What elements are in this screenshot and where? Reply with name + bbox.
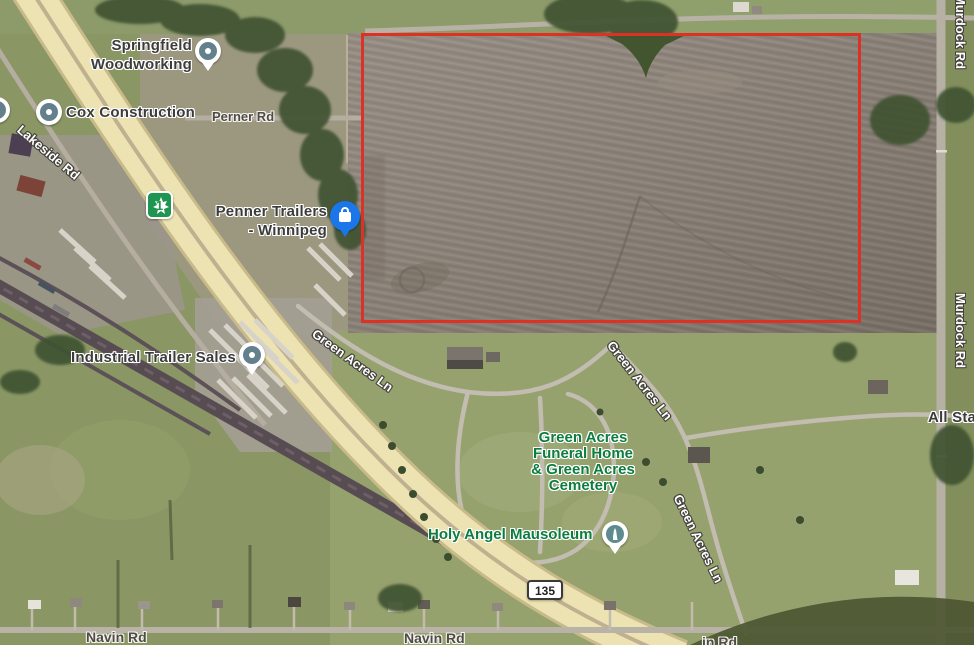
place-dot-pin-icon[interactable] bbox=[36, 99, 62, 125]
shopping-bag-pin-icon[interactable] bbox=[330, 201, 360, 241]
route-135-shield: 135 bbox=[527, 580, 563, 600]
road-label-perner-rd: Perner Rd bbox=[212, 109, 274, 124]
road-label-navin-rd: Navin Rd bbox=[404, 630, 465, 645]
road-label-navin-rd-partial: in Rd bbox=[702, 634, 737, 645]
poi-label-line: Springfield bbox=[91, 36, 192, 55]
road-label-navin-rd: Navin Rd bbox=[86, 629, 147, 645]
shield-number: 1 bbox=[148, 198, 171, 213]
shield-number: 135 bbox=[529, 584, 561, 598]
monument-icon bbox=[613, 528, 618, 540]
poi-label-line: Penner Trailers bbox=[216, 202, 327, 221]
poi-label-springfield-woodworking[interactable]: Springfield Woodworking bbox=[91, 36, 192, 74]
poi-label-industrial-trailer-sales[interactable]: Industrial Trailer Sales bbox=[71, 349, 236, 366]
poi-label-penner-trailers[interactable]: Penner Trailers - Winnipeg bbox=[216, 202, 327, 240]
place-pin-icon[interactable] bbox=[195, 38, 221, 74]
poi-label-all-star[interactable]: All Sta bbox=[928, 409, 974, 426]
monument-pin-icon[interactable] bbox=[602, 521, 628, 557]
area-label-line: & Green Acres bbox=[531, 462, 635, 478]
pin-inner-dot bbox=[0, 101, 6, 119]
poi-label-line: Woodworking bbox=[91, 55, 192, 74]
satellite-terrain bbox=[0, 0, 974, 645]
road-label-murdock-rd: Murdock Rd bbox=[953, 293, 968, 368]
map-canvas[interactable]: Springfield Woodworking Cox Construction… bbox=[0, 0, 974, 645]
shopping-bag-icon bbox=[339, 212, 351, 222]
area-label-line: Green Acres bbox=[531, 430, 635, 446]
area-label-line: Funeral Home bbox=[531, 446, 635, 462]
pin-inner-dot bbox=[40, 103, 58, 121]
pin-inner bbox=[606, 525, 624, 543]
trans-canada-hwy-1-shield: 1 bbox=[146, 191, 173, 219]
pin-tail bbox=[201, 61, 215, 71]
poi-label-line: - Winnipeg bbox=[216, 221, 327, 240]
road-label-murdock-rd: Murdock Rd bbox=[953, 0, 968, 69]
place-pin-icon[interactable] bbox=[239, 342, 265, 378]
pin-tail bbox=[245, 365, 259, 375]
area-label-holy-angel-mausoleum[interactable]: Holy Angel Mausoleum bbox=[428, 527, 592, 543]
pin-tail bbox=[339, 228, 351, 237]
pin-inner-dot bbox=[243, 346, 261, 364]
poi-label-cox-construction[interactable]: Cox Construction bbox=[66, 104, 195, 121]
area-label-green-acres-cemetery[interactable]: Green Acres Funeral Home & Green Acres C… bbox=[531, 430, 635, 494]
pin-tail bbox=[608, 544, 622, 554]
pin-inner-dot bbox=[199, 42, 217, 60]
area-label-line: Cemetery bbox=[531, 478, 635, 494]
